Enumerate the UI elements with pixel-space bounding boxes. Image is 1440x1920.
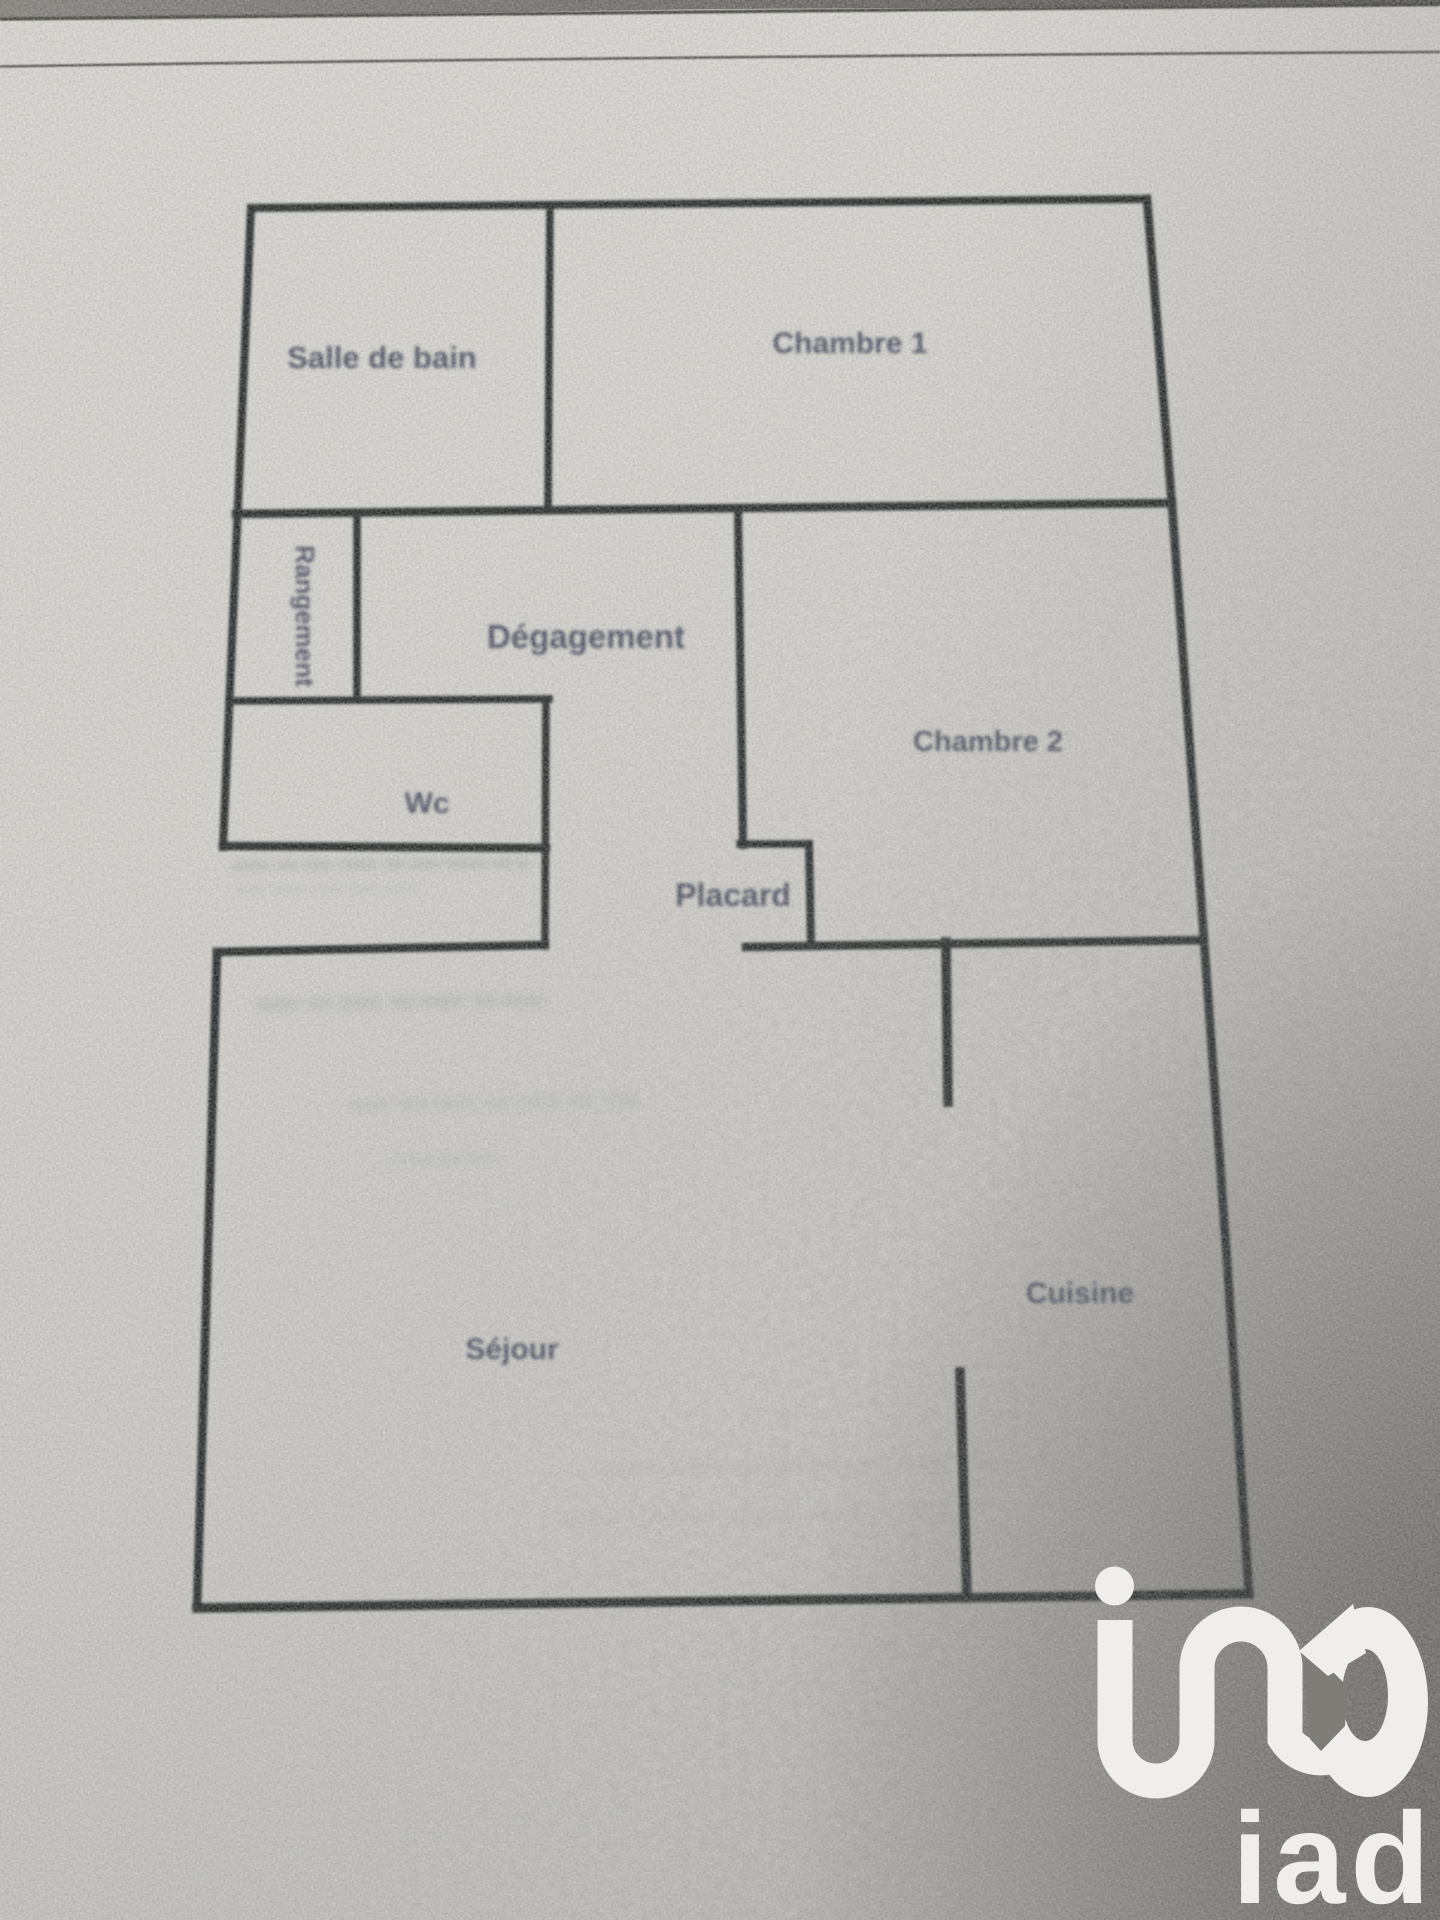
svg-text:iad: iad bbox=[1232, 1785, 1435, 1920]
